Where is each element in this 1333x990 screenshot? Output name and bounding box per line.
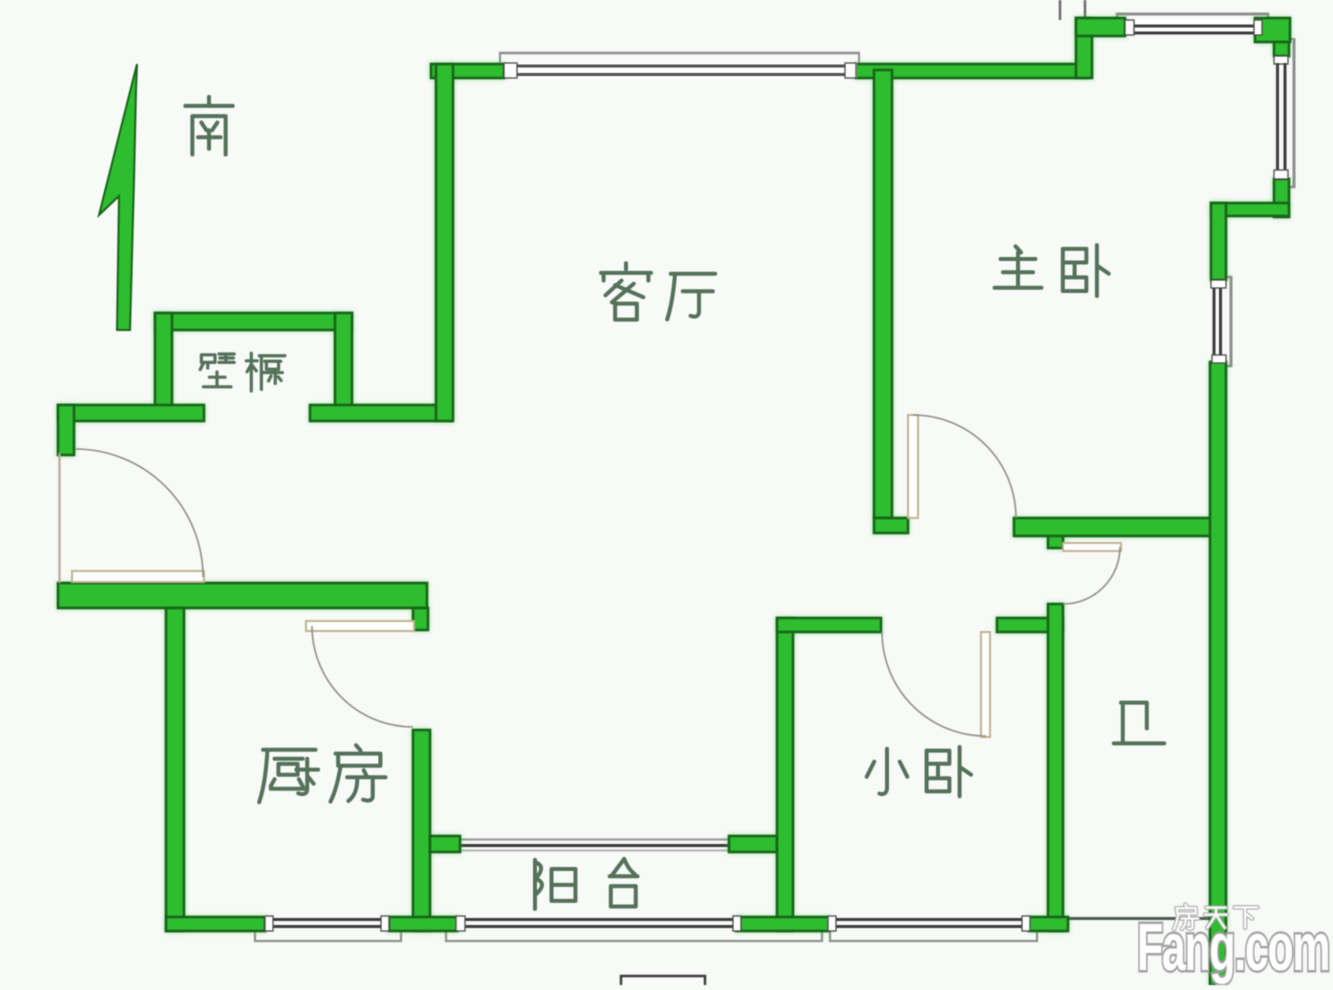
svg-text:Fang.com: Fang.com (1137, 909, 1329, 984)
